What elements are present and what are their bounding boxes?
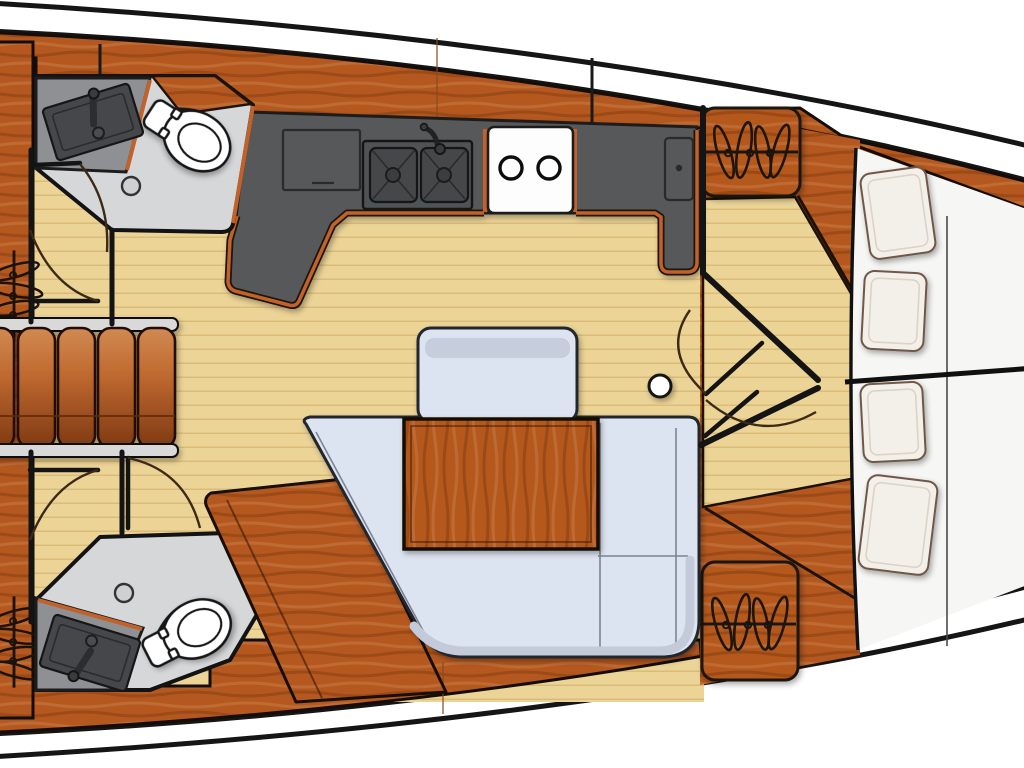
hanging-locker-top xyxy=(702,108,800,196)
forward-berth xyxy=(845,148,1024,650)
stove xyxy=(485,127,575,213)
mast-post xyxy=(649,375,671,397)
floorplan-svg xyxy=(0,0,1024,768)
hanging-locker-bottom xyxy=(700,562,798,680)
handrail xyxy=(0,444,178,457)
step-treads xyxy=(0,328,175,448)
saloon-table xyxy=(404,419,598,549)
floor-drain xyxy=(115,584,133,602)
yacht-floorplan xyxy=(0,0,1024,768)
companionway-steps xyxy=(0,318,178,457)
floor-drain xyxy=(122,177,140,195)
saloon-bench xyxy=(418,328,577,422)
